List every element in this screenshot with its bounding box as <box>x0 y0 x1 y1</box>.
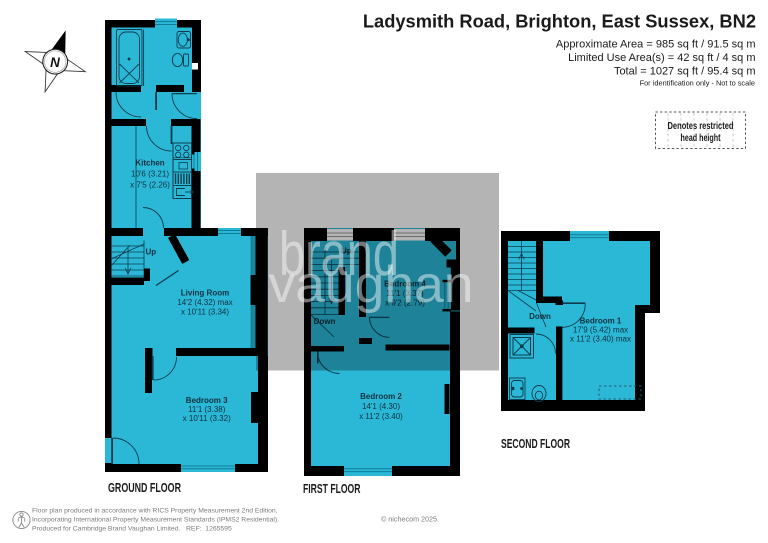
svg-text:Down: Down <box>529 312 551 321</box>
svg-text:x 11'2 (3.40): x 11'2 (3.40) <box>359 412 403 421</box>
svg-text:Bedroom 1: Bedroom 1 <box>580 317 622 326</box>
svg-text:14'1 (4.30): 14'1 (4.30) <box>362 402 400 411</box>
svg-text:vaughan: vaughan <box>269 256 474 314</box>
svg-text:Living Room: Living Room <box>181 289 229 298</box>
svg-text:FIRST FLOOR: FIRST FLOOR <box>303 482 361 496</box>
svg-text:10'6 (3.21): 10'6 (3.21) <box>131 170 169 179</box>
svg-text:© nichecom 2025.: © nichecom 2025. <box>381 515 439 524</box>
svg-text:Denotes restricted: Denotes restricted <box>668 120 734 132</box>
svg-text:Limited Use Area(s) = 42 sq ft: Limited Use Area(s) = 42 sq ft / 4 sq m <box>568 52 755 64</box>
svg-text:Produced for Cambridge Brand V: Produced for Cambridge Brand Vaughan Lim… <box>32 526 232 533</box>
svg-text:Bedroom 2: Bedroom 2 <box>360 392 402 401</box>
svg-text:Kitchen: Kitchen <box>135 158 164 167</box>
svg-text:Up: Up <box>146 248 157 257</box>
svg-text:Total = 1027 sq ft / 95.4 sq m: Total = 1027 sq ft / 95.4 sq m <box>614 66 756 78</box>
svg-text:Approximate Area = 985 sq ft /: Approximate Area = 985 sq ft / 91.5 sq m <box>556 39 756 51</box>
svg-text:14'2 (4.32) max: 14'2 (4.32) max <box>177 298 232 307</box>
svg-text:x 10'11 (3.34): x 10'11 (3.34) <box>181 308 229 317</box>
svg-text:head height: head height <box>681 132 721 144</box>
svg-text:N: N <box>50 55 60 70</box>
svg-text:Ladysmith Road, Brighton, East: Ladysmith Road, Brighton, East Sussex, B… <box>363 11 756 32</box>
svg-text:SECOND FLOOR: SECOND FLOOR <box>501 437 570 451</box>
svg-text:17'9 (5.42) max: 17'9 (5.42) max <box>573 326 628 335</box>
svg-text:x 7'5 (2.26): x 7'5 (2.26) <box>130 180 170 189</box>
svg-text:Floor plan produced in accorda: Floor plan produced in accordance with R… <box>32 508 278 515</box>
svg-text:x 10'11 (3.32): x 10'11 (3.32) <box>183 414 231 423</box>
svg-text:For identification only - Not: For identification only - Not to scale <box>640 79 755 88</box>
svg-text:11'1 (3.38): 11'1 (3.38) <box>188 405 226 414</box>
svg-text:GROUND FLOOR: GROUND FLOOR <box>108 481 181 495</box>
svg-text:x 11'2 (3.40) max: x 11'2 (3.40) max <box>570 335 631 344</box>
svg-text:Bedroom 3: Bedroom 3 <box>186 396 228 405</box>
svg-text:Incorporating International Pr: Incorporating International Property Mea… <box>32 517 279 524</box>
